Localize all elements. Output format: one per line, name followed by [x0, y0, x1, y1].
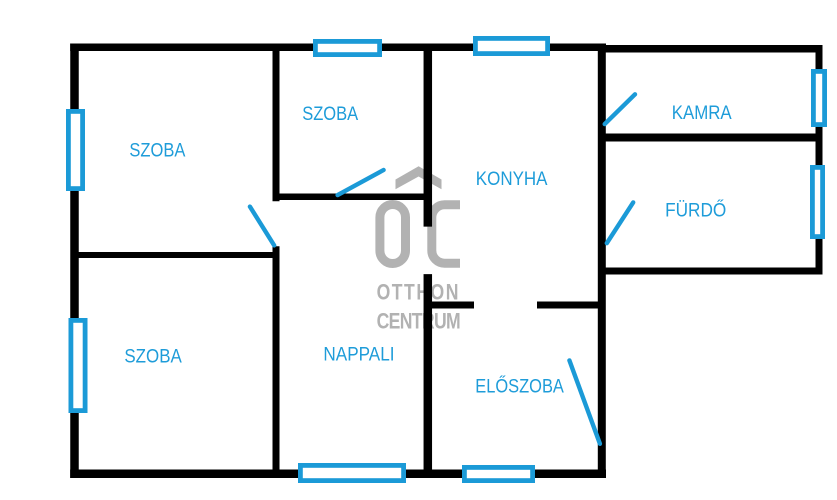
svg-text:ELŐSZOBA: ELŐSZOBA: [475, 375, 564, 398]
svg-text:SZOBA: SZOBA: [124, 345, 181, 367]
svg-text:KAMRA: KAMRA: [672, 102, 732, 124]
svg-text:KONYHA: KONYHA: [476, 168, 548, 190]
svg-text:SZOBA: SZOBA: [129, 140, 185, 162]
svg-text:CENTRUM: CENTRUM: [377, 310, 461, 334]
svg-text:NAPPALI: NAPPALI: [323, 344, 394, 366]
svg-text:SZOBA: SZOBA: [302, 103, 358, 125]
svg-text:FÜRDŐ: FÜRDŐ: [665, 199, 726, 222]
svg-text:OTTHON: OTTHON: [377, 281, 460, 305]
